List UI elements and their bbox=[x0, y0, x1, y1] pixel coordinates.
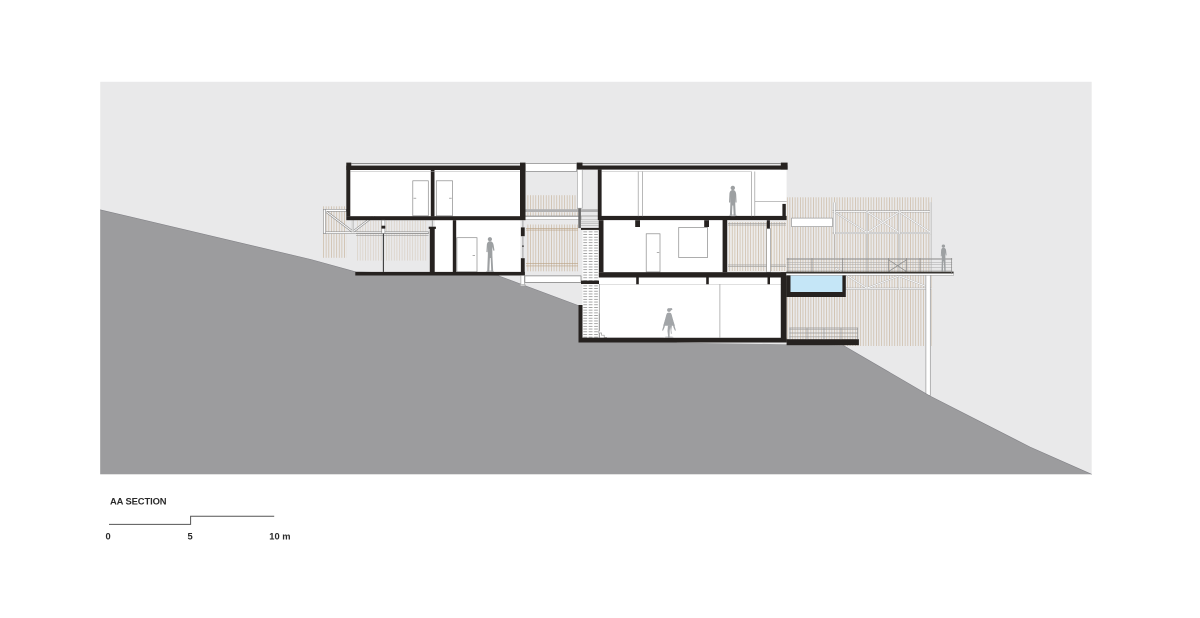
svg-text:0: 0 bbox=[106, 532, 111, 542]
svg-text:5: 5 bbox=[188, 532, 193, 542]
svg-text:AA SECTION: AA SECTION bbox=[110, 496, 167, 507]
svg-text:10 m: 10 m bbox=[269, 532, 290, 542]
